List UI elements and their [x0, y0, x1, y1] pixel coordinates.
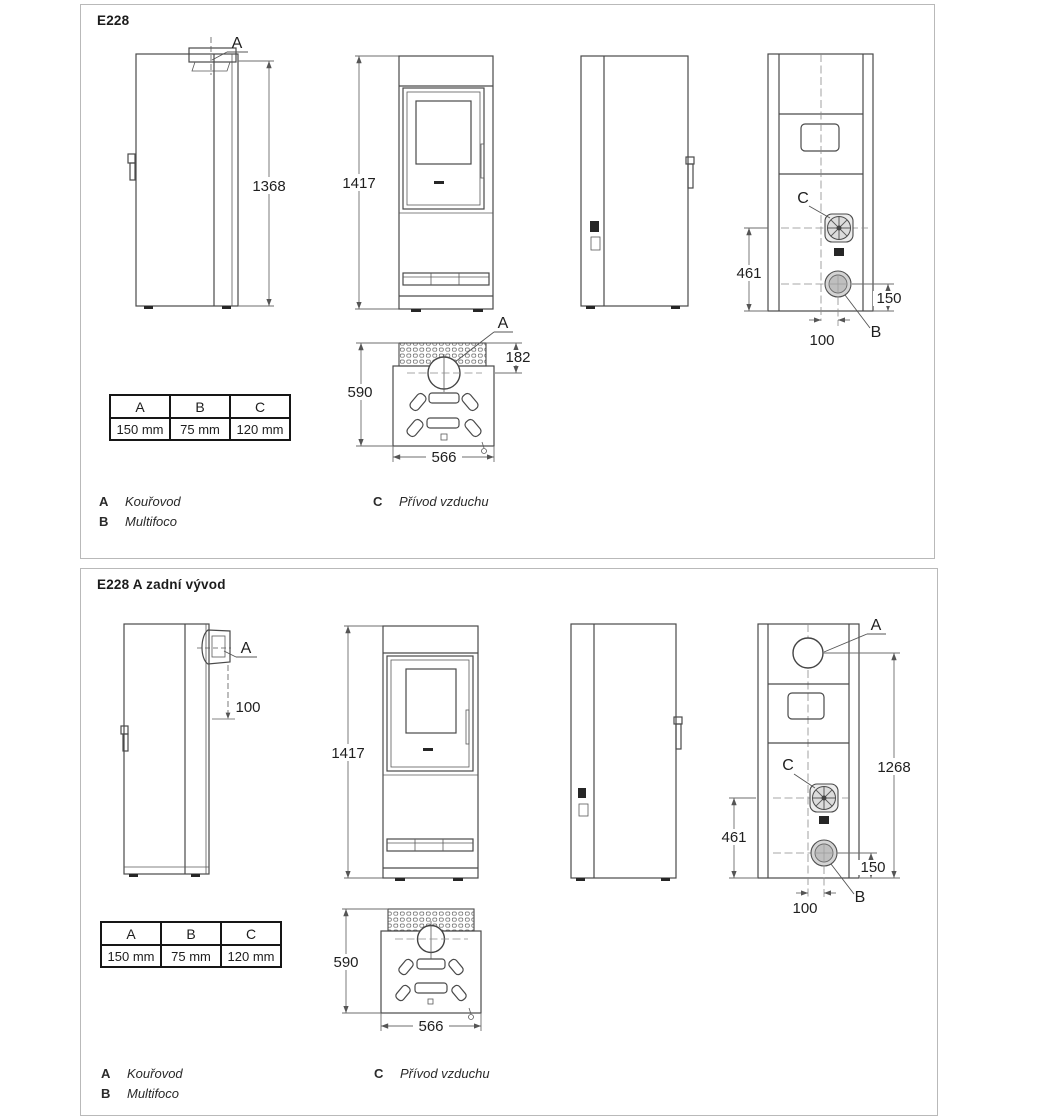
legend-item-c: C Přívod vzduchu [374, 1066, 490, 1081]
stove-door [387, 656, 473, 771]
legend-label: Multifoco [127, 1086, 179, 1101]
legend-key: A [99, 494, 125, 509]
dim-590: 590 [347, 384, 372, 401]
rating-plate [819, 816, 829, 824]
front-view-drawing: 1417 [341, 56, 493, 312]
dim-590: 590 [333, 954, 358, 971]
table-value-a: 150 mm [110, 418, 170, 440]
rating-plate [834, 248, 844, 256]
side-view-right-drawing [571, 624, 682, 881]
legend-label: Kouřovod [125, 494, 181, 509]
technical-drawing-e228-rear-outlet: A 100 1417 [81, 569, 937, 1115]
stove-door [403, 88, 484, 209]
legend-label: Multifoco [125, 514, 177, 529]
label-a: A [232, 35, 243, 52]
door-window [416, 101, 471, 164]
legend-item-b: B Multifoco [99, 514, 177, 529]
table-header-a: A [101, 922, 161, 945]
rear-opening [801, 124, 839, 151]
dim-100: 100 [809, 332, 834, 349]
door-window [406, 669, 456, 733]
spec-section-e228: E228 A 1368 [80, 4, 935, 559]
legend-label: Přívod vzduchu [399, 494, 489, 509]
legend-item-c: C Přívod vzduchu [373, 494, 489, 509]
table-header-c: C [221, 922, 281, 945]
dim-566: 566 [431, 449, 456, 466]
side-view-right-drawing [581, 56, 694, 309]
legend-key: A [101, 1066, 127, 1081]
table-value-b: 75 mm [161, 945, 221, 967]
dim-461: 461 [721, 829, 746, 846]
legend-key: C [373, 494, 399, 509]
label-a: A [871, 617, 882, 634]
door-handle [128, 154, 135, 163]
multifoco-connection-b [811, 840, 837, 866]
table-value-c: 120 mm [230, 418, 290, 440]
label-c: C [782, 757, 794, 774]
technical-drawing-e228: A 1368 1417 [81, 5, 934, 558]
dim-566: 566 [418, 1018, 443, 1035]
multifoco-connection-b [825, 271, 851, 297]
legend-item-b: B Multifoco [101, 1086, 179, 1101]
bottom-vent [387, 839, 473, 851]
label-a: A [498, 315, 509, 332]
dim-182: 182 [505, 349, 530, 366]
dim-150: 150 [860, 859, 885, 876]
legend-key: B [99, 514, 125, 529]
bottom-vent [403, 273, 489, 285]
table-header-b: B [170, 395, 230, 418]
table-value-b: 75 mm [170, 418, 230, 440]
top-view-drawing: 590 566 [329, 909, 481, 1035]
legend-key: C [374, 1066, 400, 1081]
door-handle [674, 717, 682, 724]
legend-item-a: A Kouřovod [101, 1066, 183, 1081]
dimension-table: A B C 150 mm 75 mm 120 mm [109, 394, 291, 441]
table-header-c: C [230, 395, 290, 418]
side-view-drawing: A 100 [121, 624, 264, 877]
rear-flue-outlet-a [793, 638, 823, 668]
spec-section-e228-rear-outlet: E228 A zadní vývod A [80, 568, 938, 1116]
table-value-a: 150 mm [101, 945, 161, 967]
legend-label: Přívod vzduchu [400, 1066, 490, 1081]
table-header-a: A [110, 395, 170, 418]
air-intake-c [825, 214, 853, 242]
dim-1417: 1417 [342, 175, 375, 192]
rear-view-drawing: C B 461 150 100 [732, 54, 906, 349]
dim-461: 461 [736, 265, 761, 282]
label-b: B [855, 889, 866, 906]
dim-1268: 1268 [877, 759, 910, 776]
dim-1417: 1417 [331, 745, 364, 762]
dim-100: 100 [792, 900, 817, 917]
dim-100: 100 [235, 699, 260, 716]
dimension-table: A B C 150 mm 75 mm 120 mm [100, 921, 282, 968]
rear-opening [788, 693, 824, 719]
legend-label: Kouřovod [127, 1066, 183, 1081]
door-handle [434, 181, 444, 184]
table-header-b: B [161, 922, 221, 945]
top-view-drawing: A 182 590 566 [343, 315, 534, 466]
front-view-drawing: 1417 [330, 626, 478, 881]
side-view-drawing: A 1368 [128, 35, 287, 309]
dim-1368: 1368 [252, 178, 285, 195]
door-handle [686, 157, 694, 164]
table-value-c: 120 mm [221, 945, 281, 967]
label-b: B [871, 324, 882, 341]
label-a: A [241, 640, 252, 657]
dim-150: 150 [876, 290, 901, 307]
door-handle [423, 748, 433, 751]
rear-view-drawing: A C B 1268 461 150 100 [717, 617, 915, 917]
legend-item-a: A Kouřovod [99, 494, 181, 509]
label-c: C [797, 190, 809, 207]
air-intake-c [810, 784, 838, 812]
legend-key: B [101, 1086, 127, 1101]
